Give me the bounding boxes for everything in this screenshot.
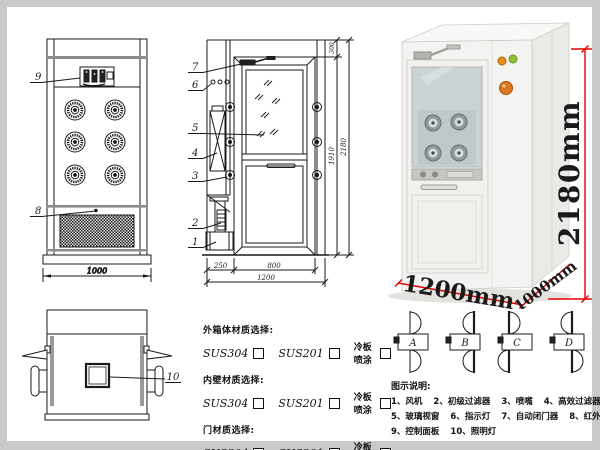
part-label-7: 7 [192,62,199,73]
door-swing-options: A B C D [392,309,587,375]
checkbox-sus201[interactable] [329,348,340,359]
legend-item: 9、控制面板 [391,427,439,437]
front-view-drawing: 9 8 1000 [27,35,177,285]
callout-9: 9 [30,72,80,83]
part-label-5: 5 [192,123,198,134]
air-return-grille [60,215,134,247]
legend-item: 1、风机 [391,397,422,407]
page-frame: 9 8 1000 [0,0,600,450]
option-letter: C [513,338,521,349]
indicator-light-orange [498,57,506,65]
legend-item: 10、照明灯 [450,427,496,437]
legend-item: 7、自动闭门器 [501,412,558,422]
material-options-row: SUS304 SUS201 冷板喷涂 [203,340,391,366]
option-sus304: SUS304 [203,447,248,450]
legend-item: 3、喷嘴 [501,397,532,407]
legend-item: 6、指示灯 [450,412,490,422]
part-label-6: 6 [192,80,199,91]
height-dimension-label: 2180mm [553,100,586,246]
legend-row: 9、控制面板10、照明灯 [391,425,596,437]
option-letter: B [460,338,468,349]
door-option-D: D [550,311,584,373]
spec-sheet: 9 8 1000 [7,7,592,441]
material-group-title: 内壁材质选择: [203,373,391,386]
nozzle-icon [105,100,125,120]
nozzle-icon [65,132,85,152]
material-group-title: 外箱体材质选择: [203,323,391,336]
legend-item: 5、玻璃视窗 [391,412,439,422]
callout-10: 10 [109,372,181,383]
part-label-2: 2 [191,218,198,229]
option-sus201: SUS201 [278,397,323,410]
lower-grey-band [47,249,147,251]
option-sus201: SUS201 [278,347,323,360]
dim-250: 250 [213,262,228,270]
width-dimensions: 250 800 1200 [204,258,328,287]
dim-300: 300 [329,42,336,54]
legend-row: 5、玻璃视窗6、指示灯7、自动闭门器8、红外线感应器 [391,410,596,422]
option-letter: D [564,338,573,349]
option-sus201: SUS201 [278,447,323,450]
top-grey-band [47,56,147,59]
legend-row: 1、风机2、初级过滤器3、喷嘴4、高效过滤器 [391,395,596,407]
control-panel [80,67,114,86]
dim-800: 800 [267,262,281,270]
material-options-row: SUS304 SUS201 冷板喷涂 [203,440,391,450]
top-view-body [47,310,147,414]
dim-1000: 1000 [87,267,107,276]
legend-item: 4、高效过滤器 [544,397,600,407]
indicator-light-green [509,55,517,63]
checkbox-sus201[interactable] [329,398,340,409]
hepa-filter [210,106,225,171]
width-dimension: 1000 [43,267,151,283]
part-label-10: 10 [167,372,180,383]
part-label-1: 1 [192,237,198,248]
product-photo: 2180mm 1200mm 1000mm [385,15,600,309]
dim-1910: 1910 [328,147,336,165]
legend-item: 2、初级过滤器 [433,397,490,407]
nozzle-icon [65,100,85,120]
door-closer [240,57,275,66]
option-coated-steel: 冷板喷涂 [354,440,375,450]
unit-structure [202,40,329,255]
option-letter: A [408,338,416,349]
part-label-8: 8 [35,206,41,217]
cabinet-3d [402,23,569,291]
glass-hatch-marks [255,80,280,137]
sensor-grey-band [47,205,147,208]
dim-1200: 1200 [257,274,275,282]
option-coated-steel: 冷板喷涂 [354,340,375,366]
nozzle-icon [105,132,125,152]
door-handle-photo[interactable] [421,185,457,190]
part-label-9: 9 [35,72,42,83]
checkbox-coated-steel[interactable] [380,348,391,359]
side-view-drawing: 7 6 5 4 3 2 1 300 1910 2180 250 800 [172,29,377,293]
part-label-3: 3 [192,171,198,182]
option-coated-steel: 冷板喷涂 [354,390,375,416]
checkbox-sus304[interactable] [253,348,264,359]
height-dimensions: 300 1910 2180 [315,37,354,258]
control-panel-photo [412,169,482,180]
option-sus304: SUS304 [203,347,248,360]
glass-window [246,70,303,154]
legend-title: 图示说明: [391,379,596,392]
material-group-title: 门材质选择: [203,423,391,436]
door-option-A: A [394,311,428,373]
part-label-4: 4 [191,148,198,159]
legend: 图示说明: 1、风机2、初级过滤器3、喷嘴4、高效过滤器 5、玻璃视窗6、指示灯… [391,379,596,440]
lamp-window [86,364,109,387]
door-option-B: B [446,311,480,373]
round-button[interactable] [500,82,513,95]
nozzle-icon [65,165,85,185]
option-sus304: SUS304 [203,397,248,410]
door-swing-indicators [22,350,172,359]
top-view-drawing: 10 [22,300,202,435]
checkbox-sus304[interactable] [253,398,264,409]
door-option-C: C [498,311,532,373]
material-selection: 外箱体材质选择: SUS304 SUS201 冷板喷涂 内壁材质选择: SUS3… [203,323,391,450]
nozzles-front [65,100,125,185]
checkbox-coated-steel[interactable] [380,398,391,409]
door [234,57,315,255]
material-options-row: SUS304 SUS201 冷板喷涂 [203,390,391,416]
nozzle-icon [105,165,125,185]
legend-item: 8、红外线感应器 [569,412,600,422]
dim-2180: 2180 [340,138,348,157]
